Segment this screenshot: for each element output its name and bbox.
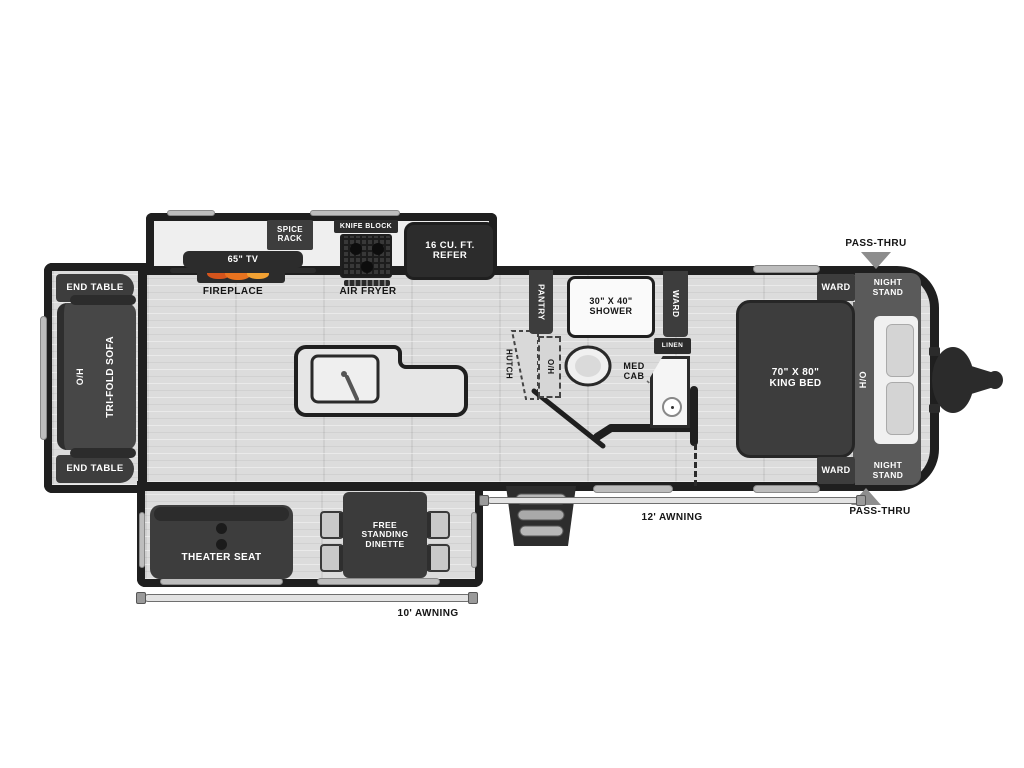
burner-icon	[372, 243, 384, 255]
propane-cover	[932, 347, 974, 413]
awning-rail-12ft	[487, 497, 859, 504]
bedroom-ward-top: WARD	[817, 274, 855, 301]
med-cab-label: MED CAB	[613, 360, 655, 384]
knife-block: KNIFE BLOCK	[334, 220, 398, 233]
bedroom-ward-bottom: WARD	[817, 457, 855, 484]
island-sink	[312, 356, 378, 402]
awning-10ft-label: 10' AWNING	[358, 607, 498, 621]
dinette-chair	[320, 511, 344, 539]
hamper-label: H/O	[859, 371, 869, 388]
king-bed: 70" X 80" KING BED	[736, 300, 855, 458]
theater-seat-label: THEATER SEAT	[182, 553, 262, 564]
refrigerator: 16 CU. FT. REFER	[404, 222, 496, 280]
hitch-frame-tab	[929, 404, 940, 413]
tri-fold-sofa: O/H TRI-FOLD SOFA	[57, 303, 136, 450]
theater-seat-back	[154, 507, 289, 521]
theater-seat: THEATER SEAT	[150, 505, 293, 579]
awning-endcap	[136, 592, 146, 604]
bathroom-wall	[597, 428, 693, 437]
air-fryer-label: AIR FRYER	[318, 285, 418, 299]
shower: 30" X 40" SHOWER	[567, 276, 655, 338]
slide-handle	[160, 578, 283, 585]
cupholder-icon	[216, 523, 227, 534]
floorplan-canvas: END TABLE END TABLE O/H TRI-FOLD SOFA 65…	[0, 0, 1024, 768]
pass-thru-top-arrow-icon	[861, 252, 891, 269]
night-stand-top: NIGHT STAND	[855, 273, 921, 302]
pillow	[886, 324, 914, 377]
hitch-coupler	[987, 371, 1003, 389]
burner-icon	[350, 243, 362, 255]
window	[139, 512, 145, 568]
bed-head-area: H/O	[853, 302, 921, 458]
window	[471, 512, 477, 568]
fireplace-label: FIREPLACE	[178, 285, 288, 299]
tv-stand	[170, 268, 316, 273]
window	[40, 316, 47, 440]
bedroom-wall-stub	[690, 386, 698, 446]
step-tread	[518, 510, 564, 520]
pass-thru-top-label: PASS-THRU	[826, 238, 926, 251]
awning-endcap	[479, 495, 489, 506]
end-table-bottom: END TABLE	[56, 455, 134, 483]
awning-endcap	[468, 592, 478, 604]
step-tread	[520, 526, 563, 536]
slide-handle	[317, 578, 440, 585]
bathroom-door	[534, 391, 603, 446]
toilet-bowl	[575, 355, 601, 377]
window	[753, 485, 820, 493]
hitch-frame-tab	[929, 347, 940, 356]
linen-cabinet: LINEN	[654, 338, 691, 354]
bedroom-sliding-door	[694, 444, 697, 486]
dinette-chair	[426, 544, 450, 572]
dinette-chair	[320, 544, 344, 572]
window	[753, 265, 820, 273]
burner-icon	[361, 261, 373, 273]
hutch-label-wrap: HUTCH	[500, 336, 516, 392]
dinette-chair	[426, 511, 450, 539]
pass-thru-bottom-label: PASS-THRU	[830, 506, 930, 519]
sofa-label: TRI-FOLD SOFA	[106, 336, 117, 418]
cooktop	[340, 234, 392, 278]
window	[593, 485, 673, 493]
slide-handle	[310, 210, 400, 216]
night-stand-bottom: NIGHT STAND	[855, 456, 921, 485]
pantry: PANTRY	[529, 270, 553, 334]
awning-rail-10ft	[144, 594, 471, 602]
overhead-cabinet: O/H	[538, 336, 561, 398]
spice-rack: SPICE RACK	[267, 220, 313, 250]
dinette-table: FREE STANDING DINETTE	[343, 492, 427, 578]
awning-endcap	[856, 495, 866, 506]
sofa-overhead-label: O/H	[76, 368, 86, 385]
awning-12ft-label: 12' AWNING	[602, 511, 742, 525]
bath-wardrobe: WARD	[663, 271, 688, 337]
pillow	[886, 382, 914, 435]
slide-handle	[167, 210, 215, 216]
vanity-drain	[671, 406, 674, 409]
tv: 65" TV	[183, 251, 303, 268]
hutch-label: HUTCH	[504, 349, 513, 379]
